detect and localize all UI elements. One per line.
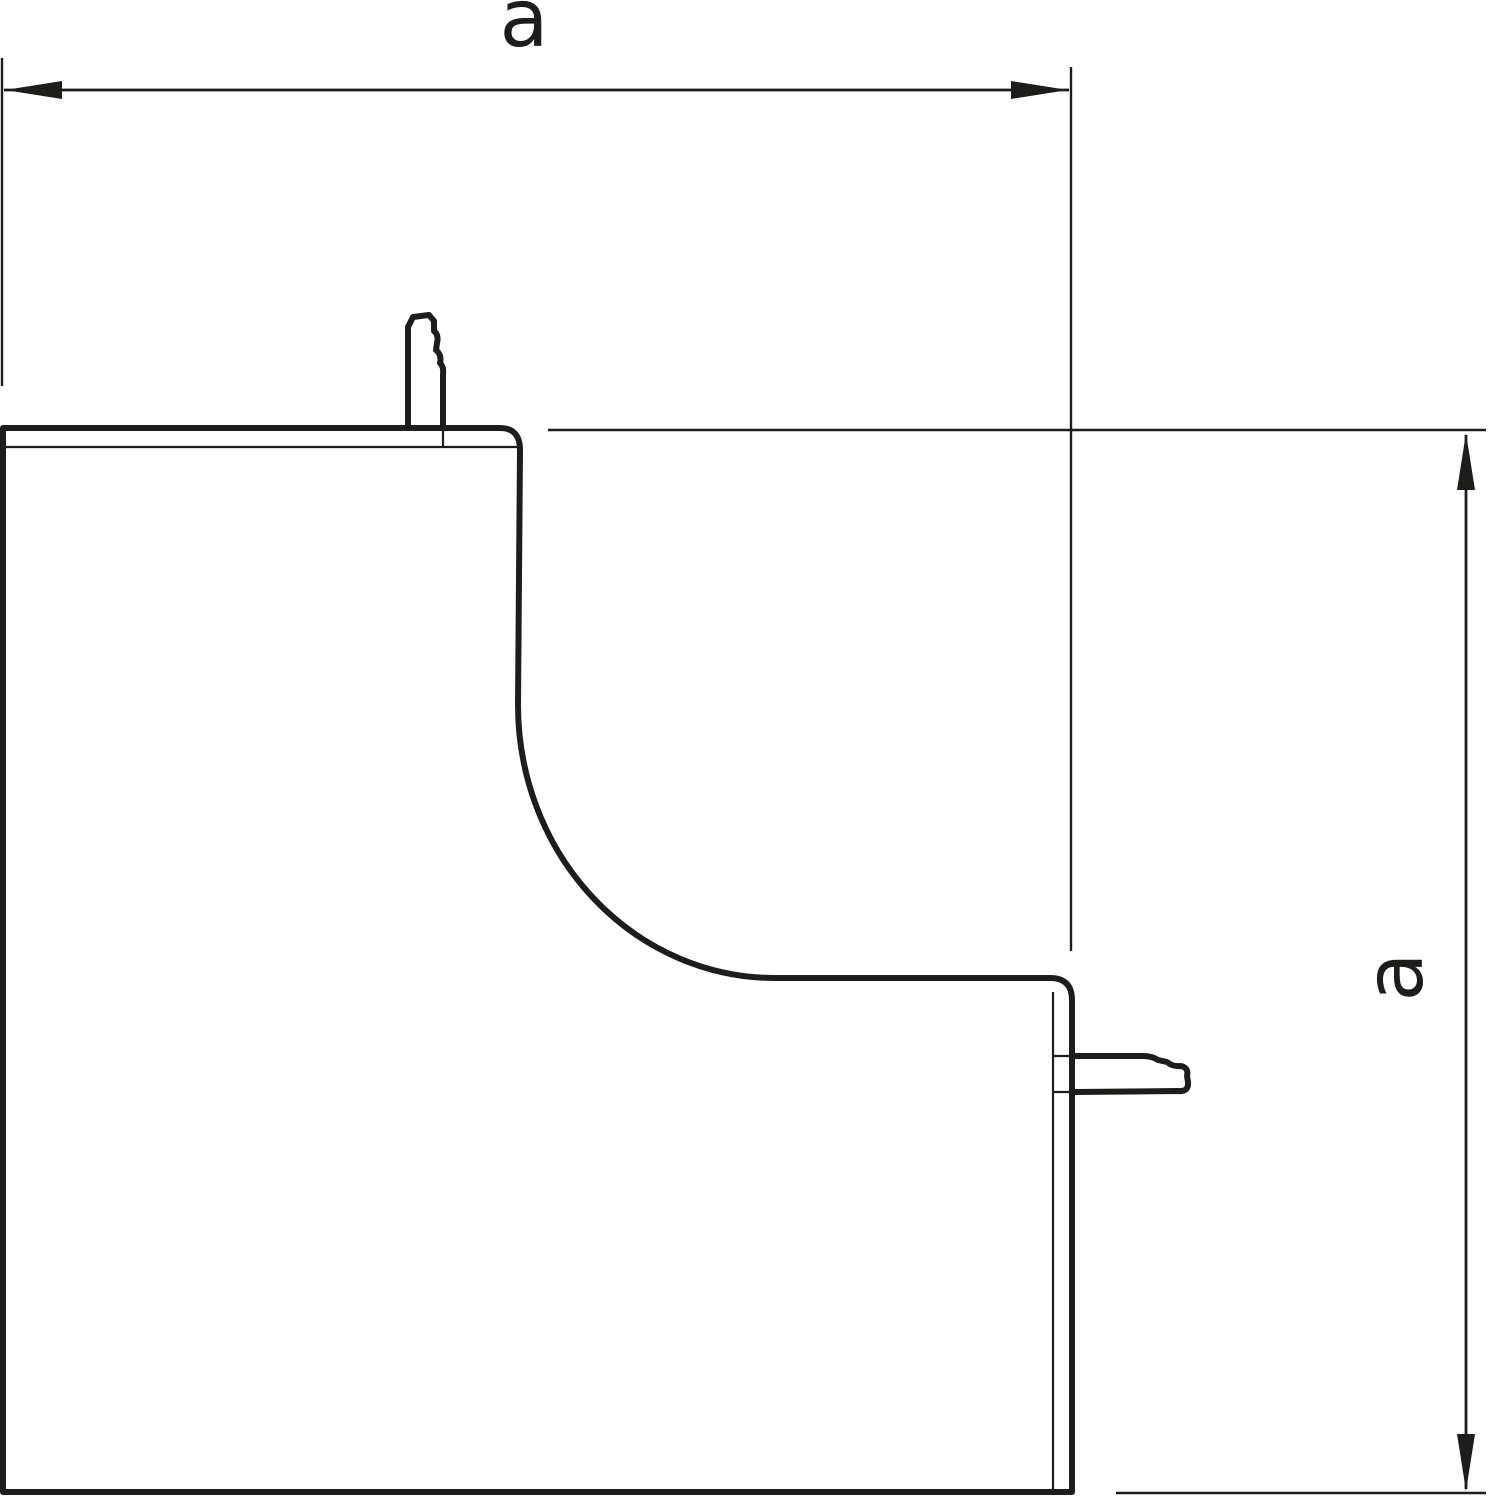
side-clip-tab	[1074, 1056, 1188, 1092]
arrow-up-icon	[1457, 433, 1475, 490]
arrow-right-icon	[1011, 81, 1068, 99]
technical-drawing-canvas: a a	[0, 0, 1491, 1500]
height-dimension-label: a	[1348, 952, 1441, 1001]
width-dimension-label: a	[499, 0, 548, 65]
part-outline	[3, 428, 1072, 1492]
dimension-drawing: a a	[0, 0, 1491, 1500]
arrow-left-icon	[5, 81, 62, 99]
arrow-down-icon	[1457, 1434, 1475, 1491]
top-clip-tab	[408, 315, 443, 428]
